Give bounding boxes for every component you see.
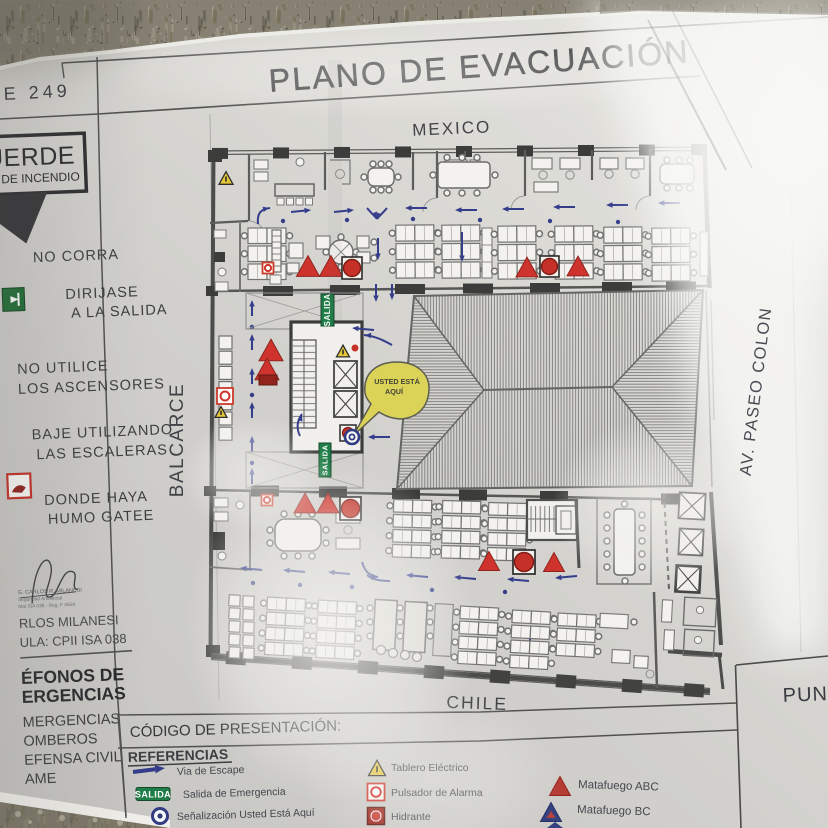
svg-text:Matafuego BC: Matafuego BC <box>577 804 651 818</box>
svg-text:Hidrante: Hidrante <box>391 811 431 823</box>
svg-text:BALCARCE: BALCARCE <box>167 383 188 497</box>
svg-text:NO CORRA: NO CORRA <box>33 247 120 266</box>
svg-text:Matafuego ABC: Matafuego ABC <box>578 779 659 794</box>
svg-text:AME: AME <box>25 771 57 788</box>
svg-text:USTED ESTÁ: USTED ESTÁ <box>374 377 420 386</box>
svg-text:DIRIJASE: DIRIJASE <box>65 284 139 303</box>
svg-text:E 249: E 249 <box>3 81 71 104</box>
svg-text:ERGENCIAS: ERGENCIAS <box>21 683 126 707</box>
svg-text:Via de Escape: Via de Escape <box>177 764 245 778</box>
svg-text:UERDE: UERDE <box>0 142 76 173</box>
svg-text:SALIDA: SALIDA <box>321 445 330 476</box>
svg-text:SALIDA: SALIDA <box>135 790 171 800</box>
svg-text:AQUÍ: AQUÍ <box>385 387 404 396</box>
svg-text:Tablero Eléctrico: Tablero Eléctrico <box>391 762 469 774</box>
svg-text:Pulsador de Alarma: Pulsador de Alarma <box>391 787 483 799</box>
svg-text:MEXICO: MEXICO <box>412 117 492 139</box>
svg-text:SALIDA: SALIDA <box>323 294 332 327</box>
svg-text:PUN: PUN <box>782 683 828 707</box>
svg-text:OMBEROS: OMBEROS <box>23 731 98 750</box>
